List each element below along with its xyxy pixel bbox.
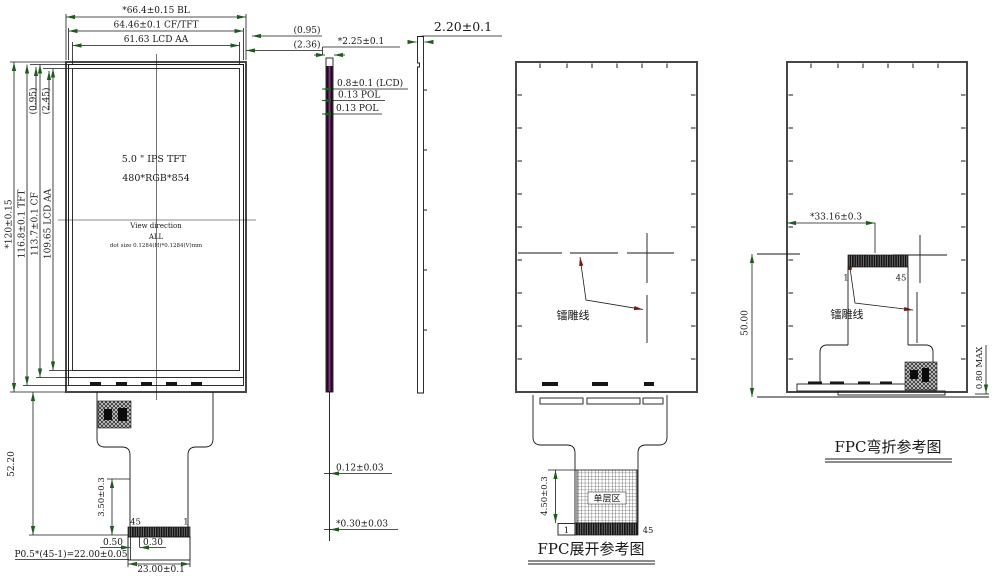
dim-connector-offset: *33.16±0.3 — [810, 213, 862, 223]
dim-stiffener: 3.50±0.3 — [97, 477, 107, 517]
fpc-open-caption: FPC展开参考图 — [538, 540, 645, 558]
connector-pin-row — [128, 527, 190, 537]
pin-45-label: 45 — [130, 518, 141, 528]
dim-pol-bottom: 0.13 POL — [336, 104, 378, 114]
side-view-cover-profile — [418, 37, 428, 394]
fpc-open-connector — [575, 523, 638, 535]
view-direction-label: View direction — [129, 222, 182, 230]
pin-1-label: 1 — [843, 274, 848, 284]
fpc-bend-labels: *33.16±0.3 1 45 镭雕线 50.00 0.80 MAX FPC弯折… — [741, 213, 986, 463]
dim-pin-width: 0.30 — [143, 538, 163, 548]
view-direction-value: ALL — [148, 233, 164, 241]
dim-single-layer: 4.50±0.3 — [540, 476, 550, 516]
dim-tape-thickness: *0.30±0.03 — [336, 520, 388, 530]
dim-height-cf: 113.7±0.1 CF — [31, 192, 41, 256]
dot-size-label: dot size 0.1284(H)*0.1284(V)mm — [110, 242, 203, 249]
fpc-open-dimensions — [548, 470, 577, 523]
dim-max-thickness: 0.80 MAX — [975, 346, 985, 389]
dim-pitch: P0.5*(45-1)=22.00±0.05 — [15, 549, 128, 560]
dim-height-bl: *120±0.15 — [5, 199, 15, 249]
gap-right-aa: (2.36) — [293, 40, 320, 51]
gap-left-cf: (0.95) — [28, 87, 39, 114]
dim-thickness-tp: 2.20±0.1 — [434, 19, 492, 34]
dim-connector-width: 23.00±0.1 — [137, 565, 185, 575]
pin-1-label: 1 — [183, 518, 188, 528]
pin-45-label: 45 — [896, 274, 907, 284]
gap-right-cf: (0.95) — [293, 25, 320, 36]
pin-45-label: 45 — [643, 526, 654, 536]
front-view-fpc-outline — [90, 382, 213, 527]
fpc-bend-view-ticks — [789, 64, 966, 360]
side-view-stack — [324, 58, 335, 541]
dim-width-bl: *66.4±0.15 BL — [122, 6, 190, 16]
fpc-open-tail — [533, 382, 667, 535]
lcd-module-drawing: *66.4±0.15 BL 64.46±0.1 CF/TFT 61.63 LCD… — [0, 0, 1000, 588]
fpc-open-view-ticks — [518, 64, 696, 360]
side-view-labels: *2.25±0.1 2.20±0.1 0.8±0.1 (LCD) 0.13 PO… — [336, 19, 492, 530]
front-view-labels: *66.4±0.15 BL 64.46±0.1 CF/TFT 61.63 LCD… — [5, 6, 321, 575]
folded-component-block — [905, 362, 937, 390]
dim-height-aa: 109.65 LCD AA — [44, 188, 54, 259]
laser-line-label: 镭雕线 — [557, 308, 590, 322]
side-view: *2.25±0.1 2.20±0.1 0.8±0.1 (LCD) 0.13 PO… — [314, 19, 502, 541]
dim-height-tft: 116.8±0.1 TFT — [18, 190, 28, 259]
fpc-open-laser-lines — [518, 233, 674, 343]
dim-fold-height: 50.00 — [741, 310, 751, 336]
single-layer-area-label: 单层区 — [593, 493, 620, 505]
front-view-dimensions — [10, 14, 322, 567]
front-view: *66.4±0.15 BL 64.46±0.1 CF/TFT 61.63 LCD… — [5, 6, 323, 575]
dim-margin: 0.50 — [103, 538, 123, 548]
fpc-bend-connector — [848, 255, 908, 267]
dim-thickness-total: *2.25±0.1 — [338, 37, 384, 47]
fpc-bend-view: *33.16±0.3 1 45 镭雕线 50.00 0.80 MAX FPC弯折… — [741, 62, 990, 462]
dim-pol-top: 0.13 POL — [338, 91, 380, 101]
dim-lcd: 0.8±0.1 (LCD) — [337, 78, 403, 89]
dim-width-aa: 61.63 LCD AA — [124, 35, 189, 45]
drawing-canvas: *66.4±0.15 BL 64.46±0.1 CF/TFT 61.63 LCD… — [0, 0, 1000, 588]
dim-width-cftft: 64.46±0.1 CF/TFT — [114, 21, 199, 31]
dim-fpc-length: 52.20 — [7, 451, 17, 477]
pin-1-label: 1 — [564, 526, 569, 536]
fpc-bend-laser-lines — [757, 235, 947, 343]
laser-line-label: 镭雕线 — [831, 307, 864, 321]
dim-fpc-thickness: 0.12±0.03 — [336, 464, 384, 474]
gap-left-aa: (2.45) — [41, 87, 52, 114]
fpc-bend-caption: FPC弯折参考图 — [835, 438, 942, 456]
panel-size-label: 5.0 " IPS TFT — [122, 154, 187, 165]
fpc-open-view: 镭雕线 4.50±0.3 1 45 单层区 FPC展开参考图 — [516, 62, 697, 564]
resolution-label: 480*RGB*854 — [122, 173, 190, 184]
